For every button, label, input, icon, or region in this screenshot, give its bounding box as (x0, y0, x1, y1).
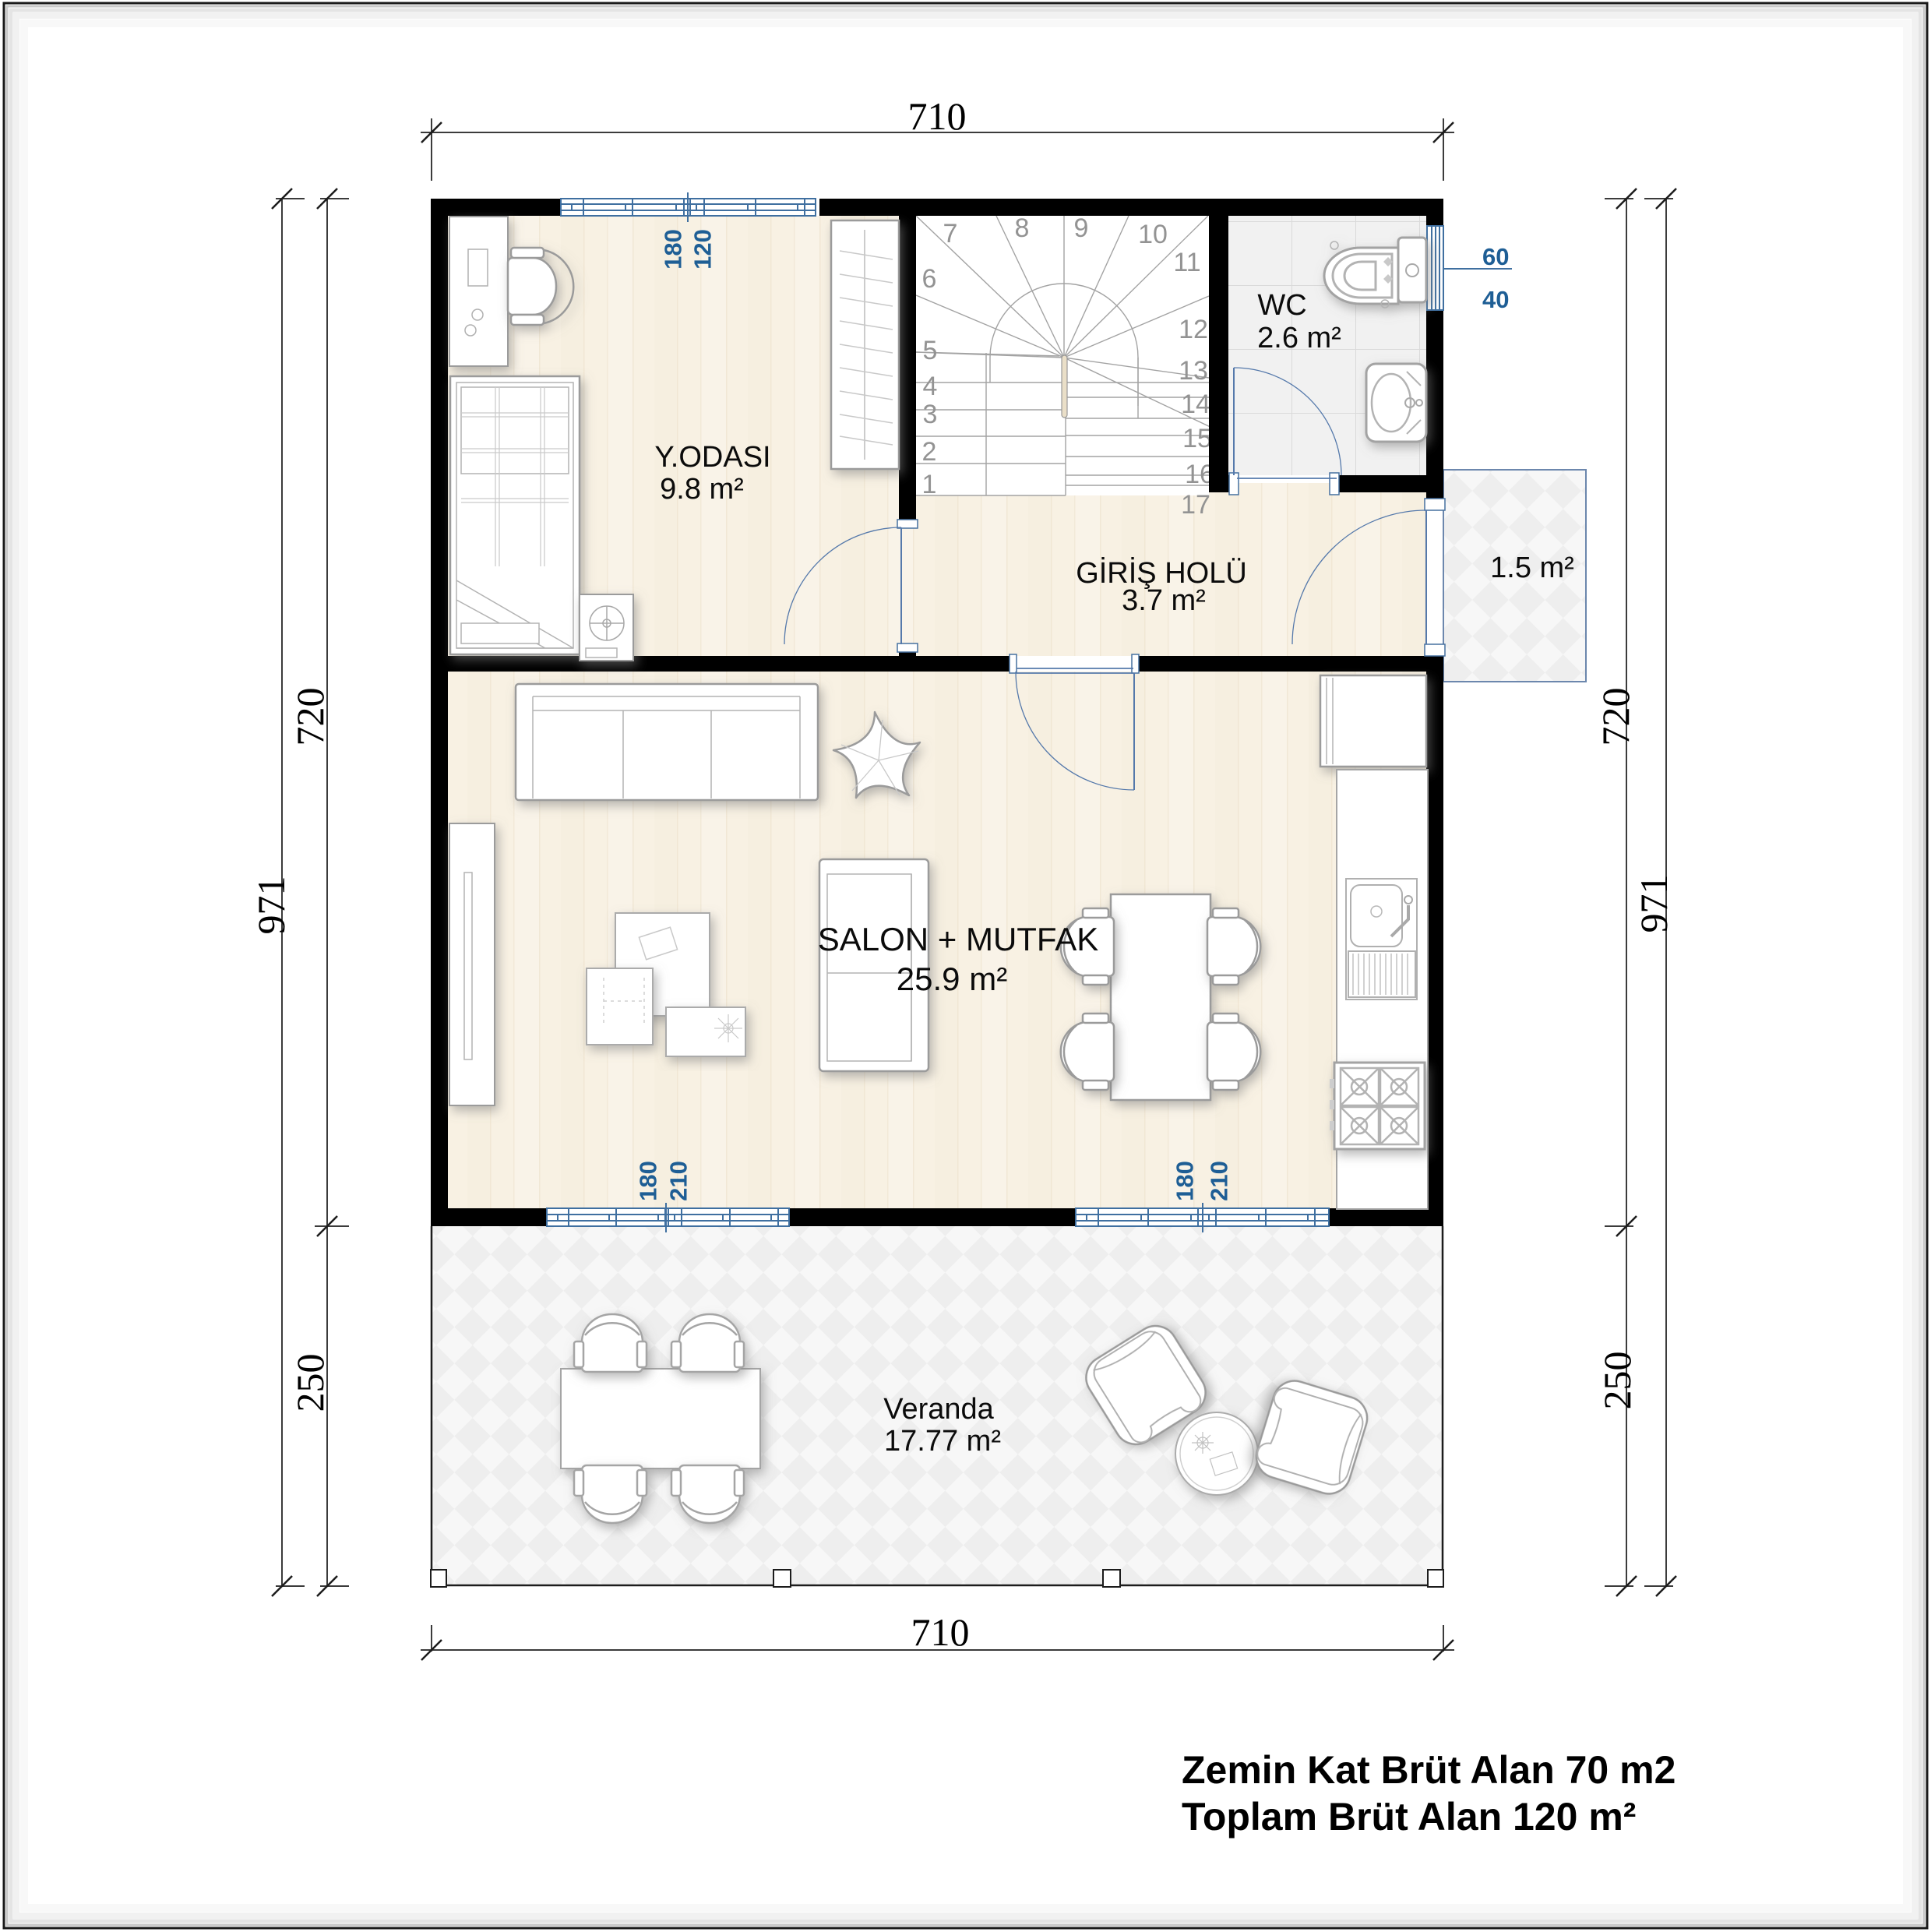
svg-text:7: 7 (943, 219, 958, 249)
svg-text:9: 9 (1074, 213, 1089, 243)
svg-text:5: 5 (923, 336, 938, 365)
svg-text:9.8 m²: 9.8 m² (660, 473, 744, 506)
svg-text:180: 180 (660, 229, 687, 270)
svg-text:11: 11 (1173, 248, 1200, 277)
svg-text:Veranda: Veranda (883, 1393, 994, 1426)
svg-text:Y.ODASI: Y.ODASI (654, 441, 770, 474)
svg-text:1.5 m²: 1.5 m² (1490, 552, 1574, 584)
svg-text:250: 250 (288, 1354, 332, 1412)
svg-text:710: 710 (908, 94, 967, 138)
svg-text:25.9 m²: 25.9 m² (897, 961, 1007, 997)
svg-text:12: 12 (1179, 315, 1208, 344)
svg-text:17: 17 (1181, 490, 1210, 520)
svg-text:250: 250 (1595, 1352, 1639, 1410)
svg-text:10: 10 (1138, 220, 1168, 249)
svg-text:180: 180 (1172, 1161, 1199, 1201)
svg-text:3.7 m²: 3.7 m² (1122, 584, 1206, 617)
svg-text:17.77 m²: 17.77 m² (884, 1425, 1001, 1458)
svg-text:3: 3 (923, 400, 938, 429)
svg-text:40: 40 (1482, 286, 1509, 313)
svg-text:2: 2 (922, 437, 937, 467)
svg-text:60: 60 (1482, 243, 1509, 270)
svg-text:14: 14 (1181, 390, 1210, 419)
svg-text:Toplam Brüt Alan 120 m²: Toplam Brüt Alan 120 m² (1182, 1795, 1636, 1839)
svg-text:13: 13 (1179, 356, 1208, 386)
svg-text:4: 4 (923, 372, 938, 401)
svg-text:6: 6 (922, 264, 937, 294)
svg-text:Zemin Kat Brüt Alan 70 m2: Zemin Kat Brüt Alan 70 m2 (1182, 1748, 1676, 1792)
svg-text:971: 971 (249, 876, 293, 935)
svg-text:2.6 m²: 2.6 m² (1257, 322, 1341, 354)
svg-text:210: 210 (1206, 1161, 1233, 1201)
svg-text:720: 720 (288, 688, 332, 746)
svg-text:WC: WC (1257, 289, 1306, 322)
svg-text:120: 120 (689, 229, 717, 270)
svg-text:8: 8 (1015, 213, 1030, 243)
svg-text:SALON + MUTFAK: SALON + MUTFAK (818, 921, 1099, 957)
svg-text:180: 180 (635, 1161, 662, 1201)
svg-text:210: 210 (665, 1161, 692, 1201)
svg-text:15: 15 (1182, 424, 1212, 453)
svg-text:1: 1 (922, 470, 937, 499)
svg-text:971: 971 (1632, 875, 1676, 933)
svg-text:720: 720 (1594, 688, 1637, 746)
svg-text:710: 710 (911, 1610, 970, 1654)
